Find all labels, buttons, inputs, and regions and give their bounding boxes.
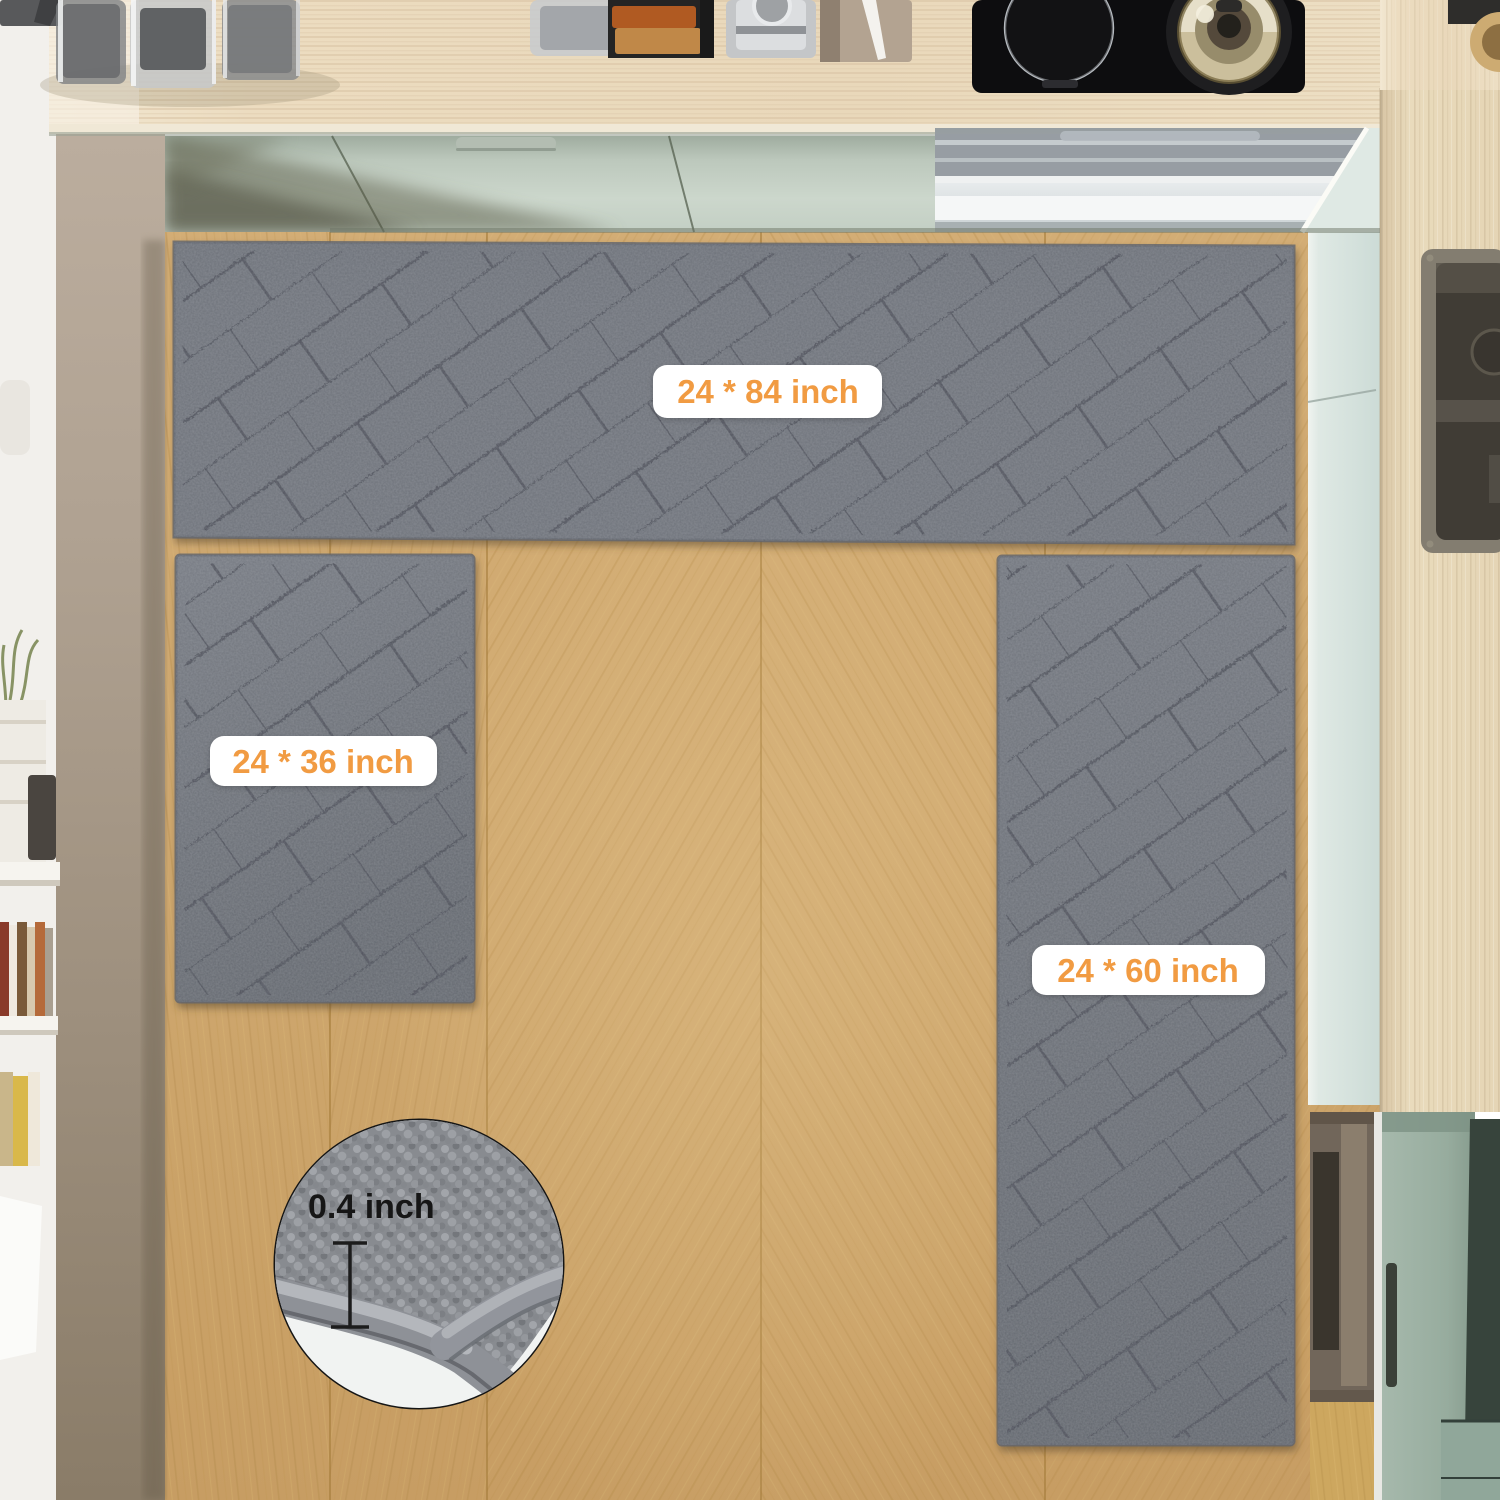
svg-text:24 * 60 inch: 24 * 60 inch <box>1057 952 1239 989</box>
svg-text:0.4 inch: 0.4 inch <box>308 1188 435 1226</box>
svg-text:24 * 84 inch: 24 * 84 inch <box>677 373 859 410</box>
svg-text:24 * 36 inch: 24 * 36 inch <box>232 743 414 780</box>
